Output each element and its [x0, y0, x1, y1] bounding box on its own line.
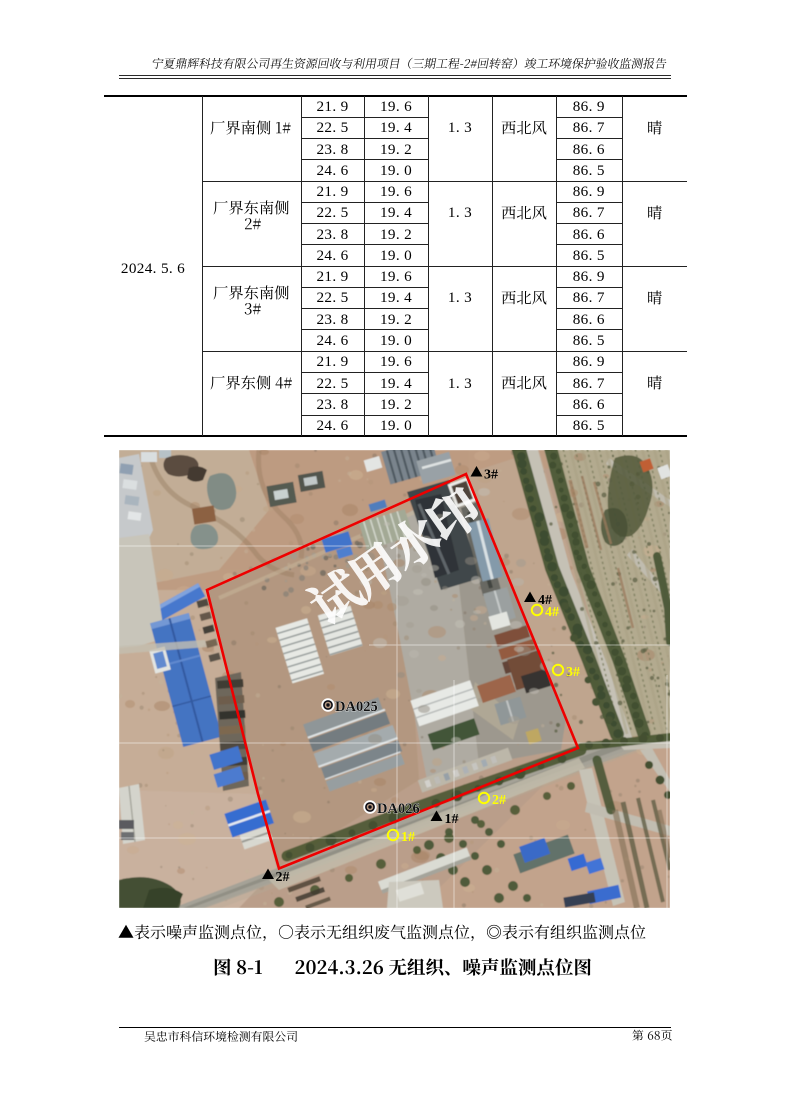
svg-text:2#: 2#	[492, 793, 506, 808]
svg-text:1#: 1#	[401, 830, 415, 845]
svg-text:DA026: DA026	[377, 801, 420, 817]
svg-text:3#: 3#	[484, 468, 498, 483]
svg-text:3#: 3#	[566, 665, 580, 680]
svg-text:4#: 4#	[545, 605, 559, 620]
svg-text:1#: 1#	[445, 812, 459, 827]
svg-text:2#: 2#	[276, 870, 290, 885]
svg-text:DA025: DA025	[335, 699, 378, 715]
